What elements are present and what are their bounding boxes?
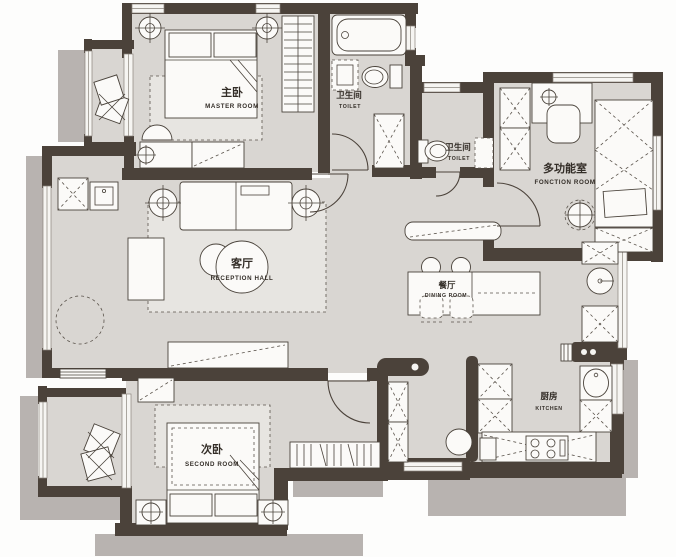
kitchen-cabinets-left	[478, 364, 512, 433]
label-function-zh: 多功能室	[543, 161, 587, 175]
label-toilet2-zh: 卫生间	[445, 142, 471, 152]
second-bookshelf	[290, 442, 380, 468]
floor-plan-canvas: 主卧 MASTER ROOM 卫生间 TOILET	[0, 0, 676, 557]
kitchen-stove	[526, 436, 568, 460]
second-nightstand-left	[136, 500, 166, 525]
second-bed	[167, 423, 259, 523]
bathroom-sink	[332, 60, 358, 90]
utility-sink	[90, 182, 118, 210]
entry-wardrobe	[388, 382, 408, 462]
tv-console	[168, 342, 288, 368]
label-kitchen-zh: 厨房	[540, 391, 557, 401]
label-master-en: MASTER ROOM	[205, 103, 259, 110]
label-second-en: SECOND ROOM	[185, 461, 239, 468]
washing-machine	[58, 178, 88, 210]
bathtub	[332, 15, 406, 55]
balcony-cabinet-bottom	[582, 306, 618, 342]
entry-stool	[446, 429, 472, 455]
balcony-cabinet-top	[582, 242, 618, 264]
living-side-table	[128, 238, 164, 300]
label-living-en: RECEPTION HALL	[211, 275, 274, 282]
label-bathroom-en: TOILET	[339, 104, 361, 110]
function-wardrobe	[500, 88, 530, 170]
floor-plan-page: 主卧 MASTER ROOM 卫生间 TOILET	[0, 0, 676, 557]
function-bed	[595, 100, 653, 227]
label-second-zh: 次卧	[201, 442, 223, 456]
label-toilet2-en: TOILET	[448, 156, 470, 162]
label-master-zh: 主卧	[221, 85, 243, 99]
label-kitchen-en: KITCHEN	[535, 406, 562, 412]
master-wardrobe	[282, 16, 314, 112]
sofa	[180, 182, 292, 230]
kitchen-radiator	[561, 344, 572, 361]
shower	[374, 114, 404, 168]
hall-shoe-bench	[405, 222, 501, 240]
master-bench	[136, 142, 244, 168]
label-function-en: FONCTION ROOM	[534, 179, 595, 186]
label-dining-en: DINING ROOM	[425, 293, 467, 299]
label-living-zh: 客厅	[230, 256, 253, 270]
utility-ac-unit	[60, 369, 106, 378]
label-bathroom-zh: 卫生间	[336, 90, 362, 100]
kitchen-cabinet-right	[580, 400, 612, 432]
kitchen-sink	[580, 366, 612, 400]
bathroom-toilet	[362, 65, 402, 88]
second-nightstand-right	[258, 500, 288, 525]
label-dining-zh: 餐厅	[437, 280, 456, 290]
second-desk	[138, 378, 174, 402]
toilet2-sink	[475, 138, 493, 168]
